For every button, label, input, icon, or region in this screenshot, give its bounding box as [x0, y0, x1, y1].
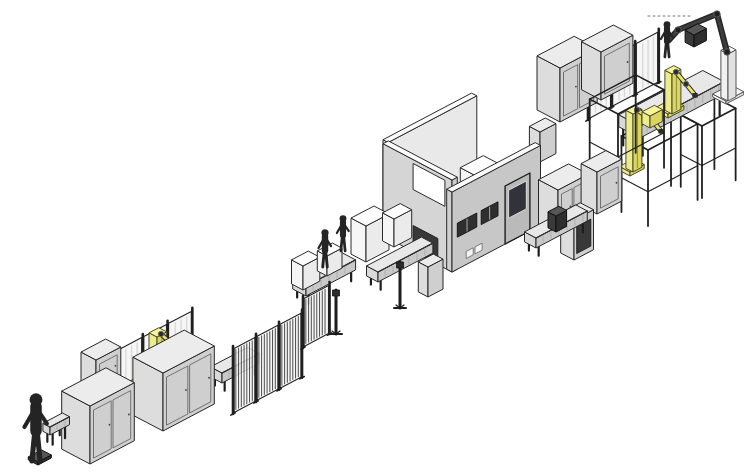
assembly-line-isometric-illustration [0, 0, 744, 475]
stand-post-b [330, 290, 342, 334]
link-conveyor-box [548, 206, 567, 232]
slat-fence-a [231, 310, 304, 416]
production-line-screenshot [0, 0, 744, 475]
operator-b [337, 215, 349, 251]
infeed-cabinet-a [62, 368, 135, 464]
staging-small-cabinet [418, 254, 443, 297]
staging-box-b [383, 204, 412, 247]
cluster-cabinet-d [581, 151, 622, 214]
